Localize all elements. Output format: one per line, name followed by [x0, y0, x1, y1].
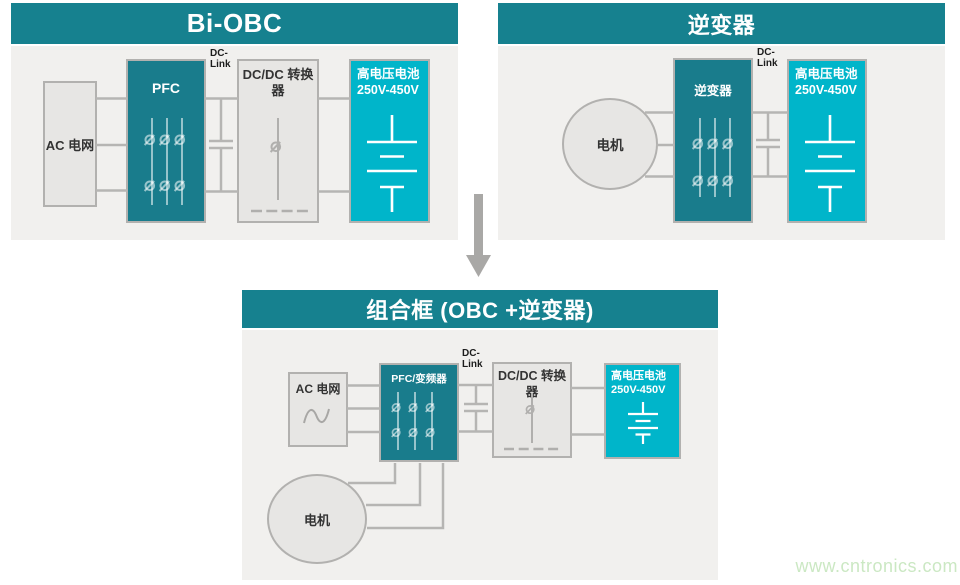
- dc-link-line2: Link: [462, 359, 483, 370]
- dc-link-label: DC- Link: [462, 348, 483, 370]
- pfc-inverter-label: PFC/变频器: [379, 371, 459, 386]
- motor-circle: 电机: [267, 474, 367, 564]
- watermark: www.cntronics.com: [795, 556, 958, 577]
- dc-link-line1: DC-: [462, 348, 483, 359]
- dcdc-label-line1: DC/DC 转换: [492, 369, 572, 385]
- battery-label-line2: 250V-450V: [611, 383, 666, 397]
- ac-grid-label: AC 电网: [288, 380, 348, 397]
- hv-battery-label: 高电压电池 250V-450V: [611, 369, 666, 398]
- dcdc-label-line2: 器: [492, 385, 572, 401]
- panel-combined: 组合框 (OBC +逆变器) 电机 AC 电网 PFC/变频器 DC- Link…: [0, 0, 960, 585]
- motor-label: 电机: [304, 510, 330, 529]
- combined-title: 组合框 (OBC +逆变器): [366, 293, 594, 325]
- battery-label-line1: 高电压电池: [611, 369, 666, 383]
- dcdc-converter-label: DC/DC 转换 器: [492, 369, 572, 400]
- combined-title-bar: 组合框 (OBC +逆变器): [242, 290, 718, 328]
